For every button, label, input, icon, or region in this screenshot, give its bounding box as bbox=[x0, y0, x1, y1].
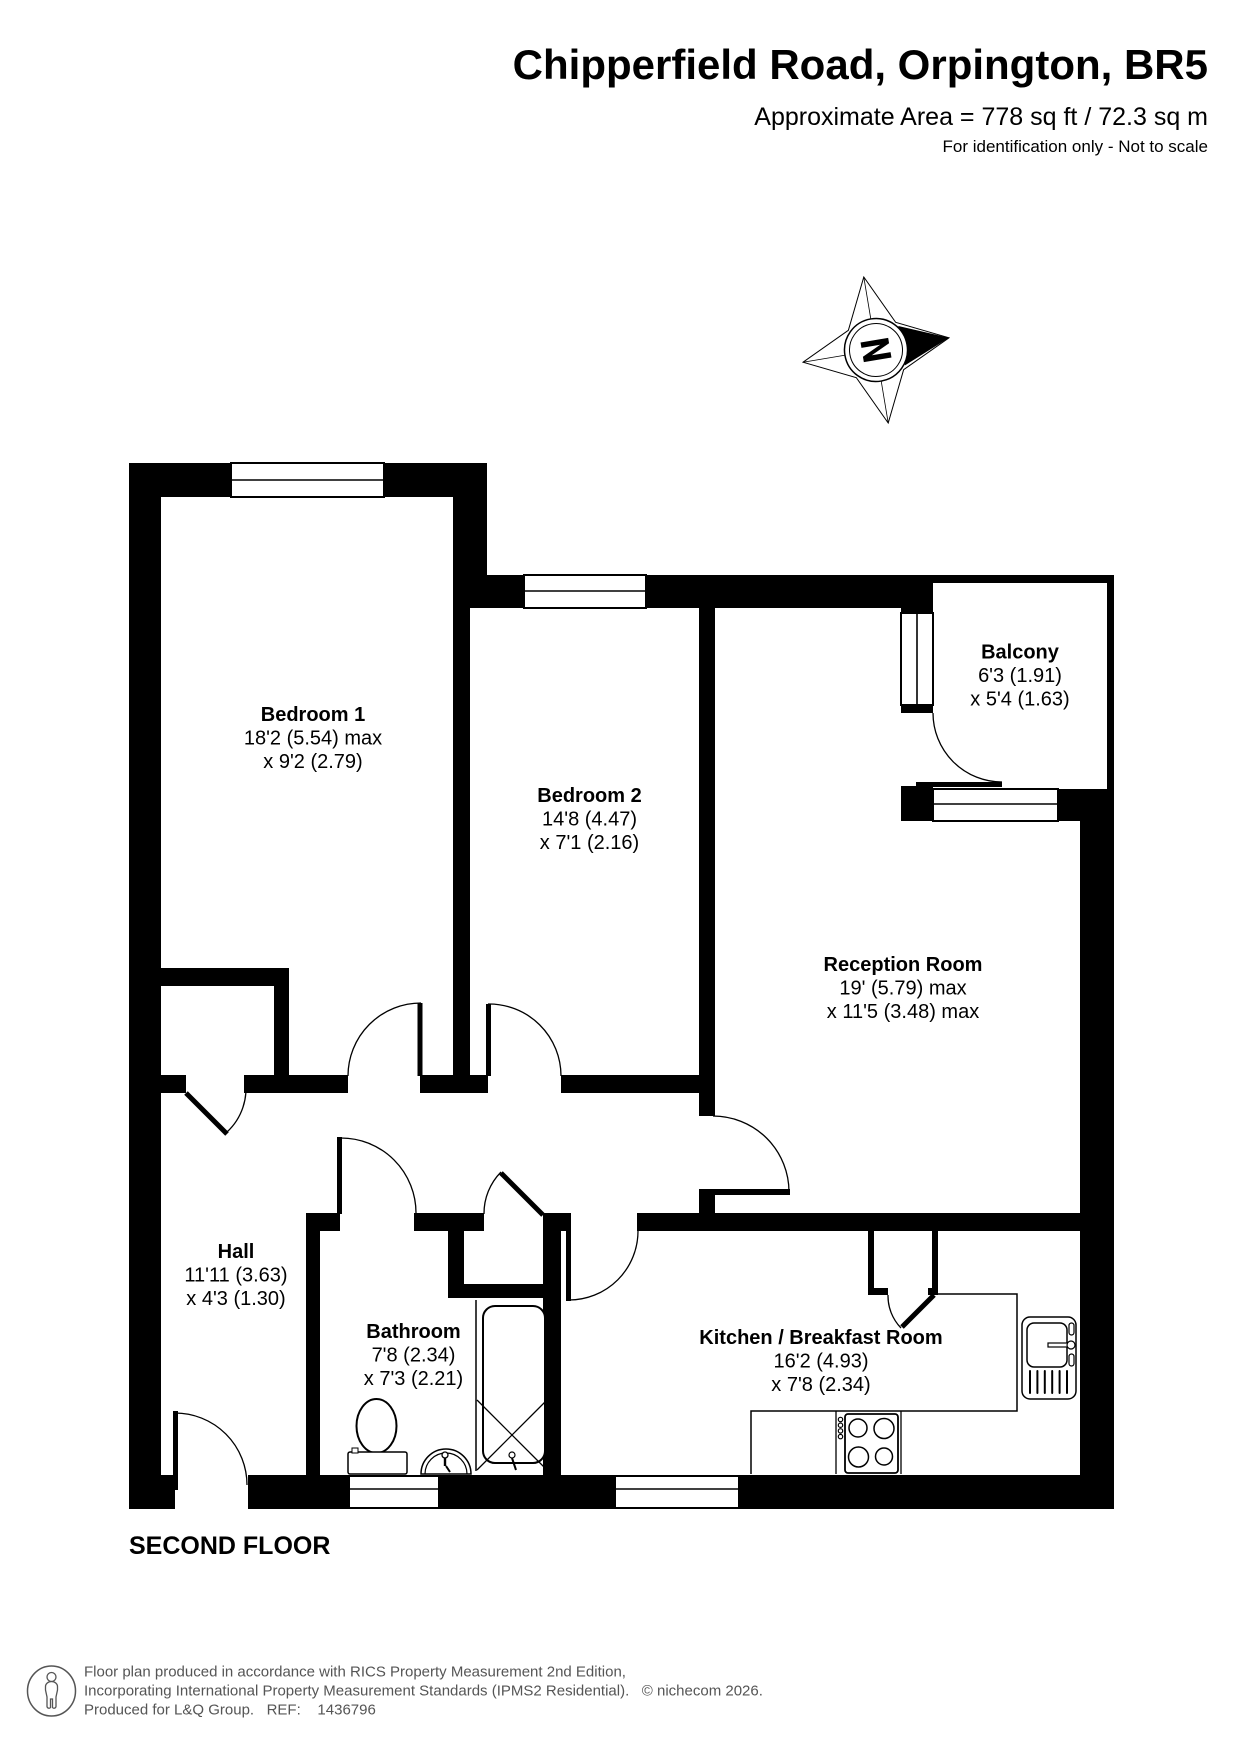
svg-text:Bedroom 1: Bedroom 1 bbox=[261, 704, 365, 726]
svg-text:14'8 (4.47): 14'8 (4.47) bbox=[542, 809, 637, 831]
svg-text:Approximate Area = 778 sq ft /: Approximate Area = 778 sq ft / 72.3 sq m bbox=[754, 103, 1208, 131]
svg-text:x 11'5 (3.48) max: x 11'5 (3.48) max bbox=[827, 1001, 979, 1023]
svg-text:SECOND FLOOR: SECOND FLOOR bbox=[129, 1532, 330, 1560]
svg-text:Produced for L&Q Group. REF:: Produced for L&Q Group. REF: 1436796 bbox=[84, 1702, 376, 1719]
svg-text:x 4'3 (1.30): x 4'3 (1.30) bbox=[186, 1288, 285, 1310]
svg-text:For identification only - Not: For identification only - Not to scale bbox=[942, 137, 1208, 156]
svg-text:Floor plan produced in accorda: Floor plan produced in accordance with R… bbox=[84, 1664, 626, 1681]
svg-text:6'3 (1.91): 6'3 (1.91) bbox=[978, 665, 1062, 687]
svg-text:11'11 (3.63): 11'11 (3.63) bbox=[184, 1265, 287, 1287]
svg-text:Bathroom: Bathroom bbox=[366, 1321, 460, 1343]
svg-text:Balcony: Balcony bbox=[981, 642, 1060, 664]
svg-text:Chipperfield Road, Orpington,: Chipperfield Road, Orpington, BR5 bbox=[513, 41, 1208, 88]
svg-text:Incorporating International Pr: Incorporating International Property Mea… bbox=[84, 1683, 763, 1700]
svg-text:Kitchen / Breakfast Room: Kitchen / Breakfast Room bbox=[699, 1327, 942, 1349]
svg-text:x 7'8 (2.34): x 7'8 (2.34) bbox=[771, 1374, 870, 1396]
svg-text:Reception Room: Reception Room bbox=[824, 954, 983, 976]
svg-text:x 5'4 (1.63): x 5'4 (1.63) bbox=[970, 689, 1069, 711]
svg-text:16'2 (4.93): 16'2 (4.93) bbox=[774, 1351, 869, 1373]
svg-text:x 7'3 (2.21): x 7'3 (2.21) bbox=[364, 1368, 463, 1390]
svg-text:7'8 (2.34): 7'8 (2.34) bbox=[372, 1345, 456, 1367]
svg-text:Bedroom 2: Bedroom 2 bbox=[537, 785, 641, 807]
svg-text:Hall: Hall bbox=[218, 1241, 255, 1263]
svg-text:x 7'1 (2.16): x 7'1 (2.16) bbox=[540, 832, 639, 854]
svg-text:19' (5.79) max: 19' (5.79) max bbox=[839, 978, 966, 1000]
svg-text:x 9'2 (2.79): x 9'2 (2.79) bbox=[263, 751, 362, 773]
svg-text:18'2 (5.54) max: 18'2 (5.54) max bbox=[244, 728, 382, 750]
